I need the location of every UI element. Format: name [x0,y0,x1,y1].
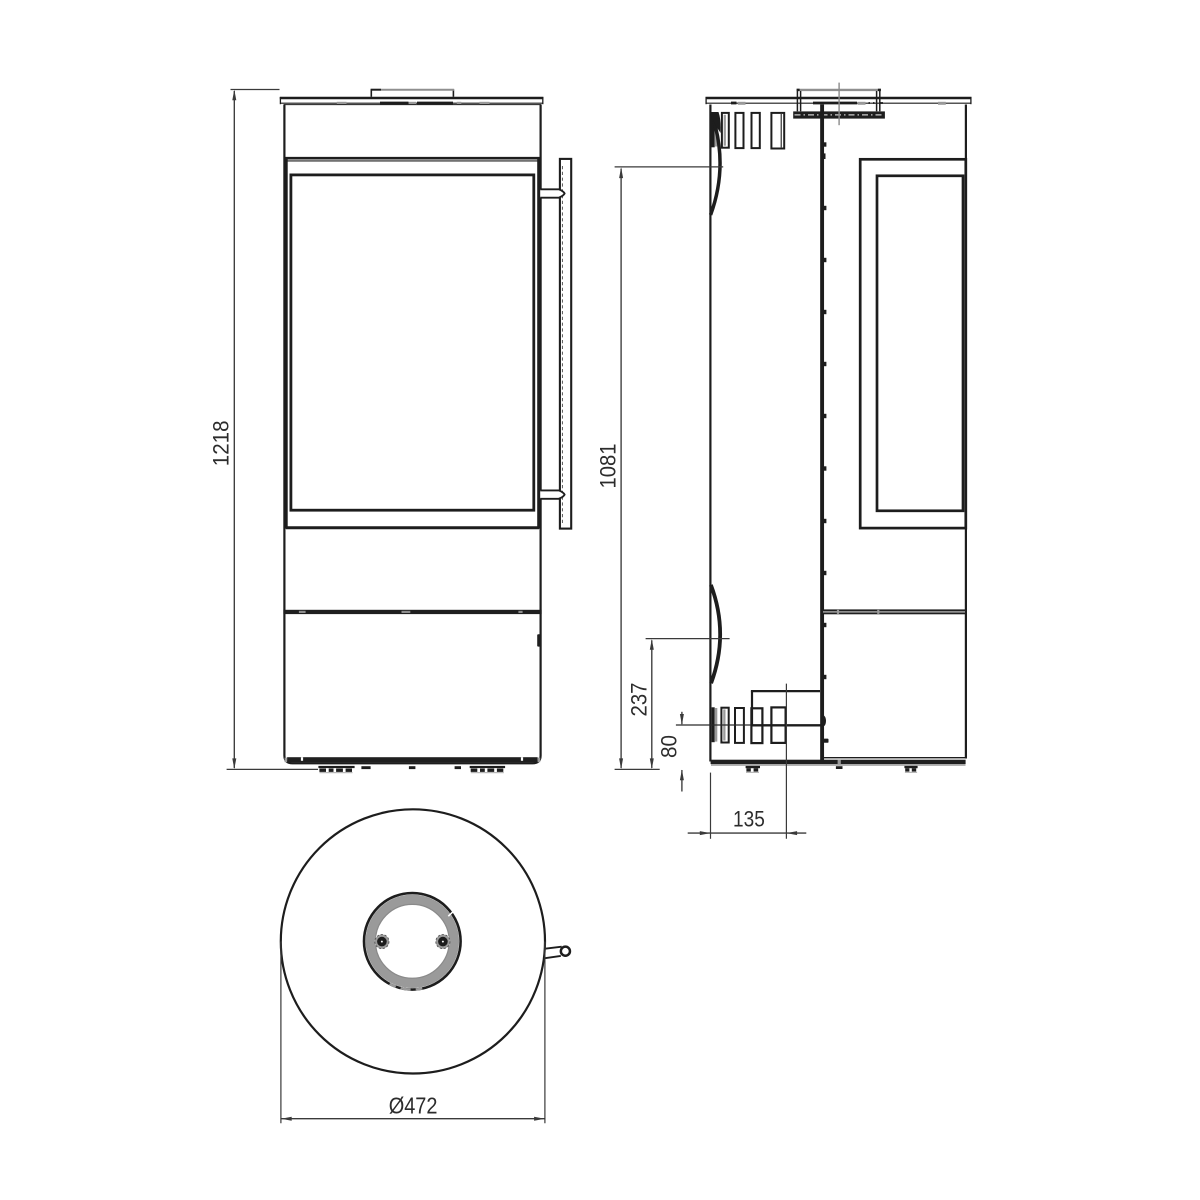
svg-text:1081: 1081 [596,444,621,489]
svg-text:237: 237 [627,683,652,717]
svg-text:135: 135 [733,806,765,831]
svg-text:80: 80 [656,735,681,758]
svg-text:1218: 1218 [209,421,234,467]
svg-text:Ø472: Ø472 [389,1093,438,1119]
